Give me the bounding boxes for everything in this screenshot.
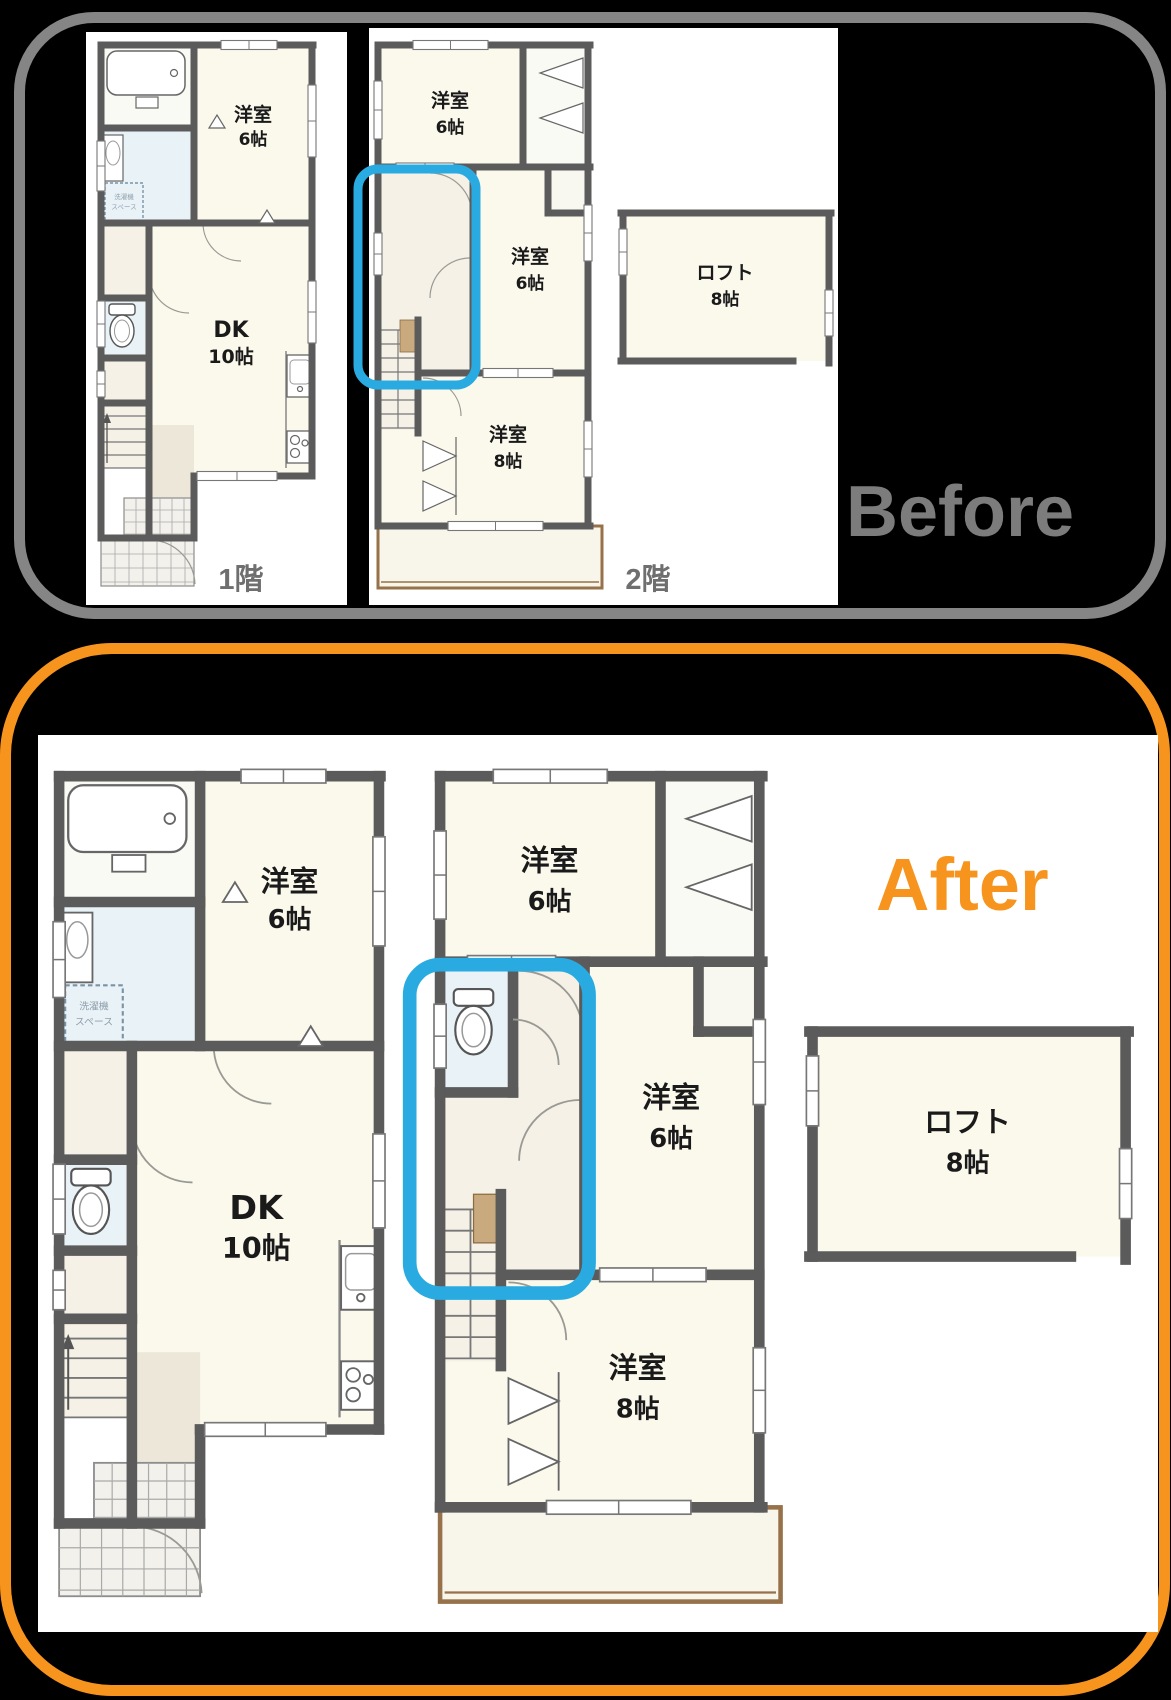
floor2-bedroom-bottom-label: 洋室 xyxy=(609,1351,667,1385)
floor2-bedroom-bottom-size: 8帖 xyxy=(616,1395,660,1425)
floor1-dk-label: DK xyxy=(229,1188,284,1227)
floor2-bedroom-top-label: 洋室 xyxy=(431,89,469,112)
after-title: After xyxy=(876,848,1049,922)
laundry-space-label-2: スペース xyxy=(75,1017,113,1028)
loft-label: ロフト xyxy=(924,1105,1011,1139)
before-after-floorplan-comparison: 洗濯機スペース洋室6帖DK10帖 洋室6帖洋室6帖洋室8帖ロフト8帖 1階 2階… xyxy=(0,0,1171,1700)
floor1-bedroom-size: 6帖 xyxy=(268,905,312,935)
floor2-bedroom-mid-label: 洋室 xyxy=(511,245,549,268)
floor2-bedroom-mid-size: 6帖 xyxy=(516,273,545,294)
before-floor2-caption: 2階 xyxy=(588,556,708,598)
before-floor1-plan: 洗濯機スペース洋室6帖DK10帖 xyxy=(91,33,318,603)
floor2-bedroom-top-size: 6帖 xyxy=(436,117,465,138)
floor1-bedroom-size: 6帖 xyxy=(239,129,268,150)
floor2-bedroom-bottom-label: 洋室 xyxy=(489,423,527,446)
floor1-bedroom-label: 洋室 xyxy=(234,103,272,126)
floor2-bedroom-top-size: 6帖 xyxy=(528,887,572,917)
loft-size: 8帖 xyxy=(711,289,740,310)
before-floor2-plan: 洋室6帖洋室6帖洋室8帖ロフト8帖 xyxy=(353,33,845,608)
before-title: Before xyxy=(846,476,1074,548)
after-floor1-plan: 洗濯機スペース洋室6帖DK10帖 xyxy=(38,758,394,1622)
laundry-space-label-1: 洗濯機 xyxy=(114,192,134,201)
floor1-bedroom-label: 洋室 xyxy=(261,864,319,898)
laundry-space-label-2: スペース xyxy=(111,203,136,211)
floor2-bedroom-top-label: 洋室 xyxy=(521,843,579,877)
floor2-bedroom-bottom-size: 8帖 xyxy=(494,451,523,472)
loft-label: ロフト xyxy=(696,262,753,284)
laundry-space-label-1: 洗濯機 xyxy=(79,1000,109,1013)
floor2-bedroom-mid-label: 洋室 xyxy=(642,1081,700,1115)
before-floor1-caption: 1階 xyxy=(181,556,301,598)
floor1-dk-size: 10帖 xyxy=(222,1231,291,1265)
floor2-bedroom-mid-size: 6帖 xyxy=(649,1124,693,1154)
floor1-dk-size: 10帖 xyxy=(208,345,253,368)
loft-size: 8帖 xyxy=(946,1148,990,1178)
floor1-dk-label: DK xyxy=(213,318,249,343)
